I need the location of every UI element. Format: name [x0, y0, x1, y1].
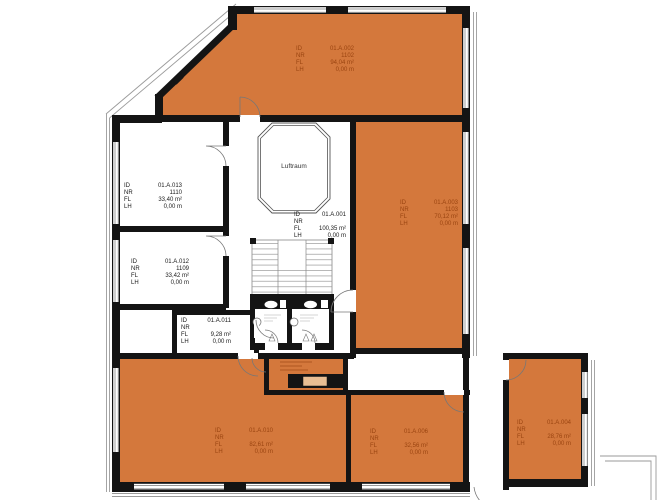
- field-key-id: ID: [294, 212, 307, 219]
- field-key-nr: NR: [296, 53, 309, 60]
- room-label-01-a-012: ID01.A.012 NR1109 FL33,42 m² LH0,00 m: [131, 259, 189, 287]
- room-fl: 28,76 m²: [530, 434, 571, 441]
- floor-plan: ID01.A.002 NR1102 FL94,04 m² LH0,00 m ID…: [0, 0, 660, 500]
- room-lh: 0,00 m: [137, 204, 182, 211]
- field-key-lh: LH: [296, 67, 309, 74]
- room-nr: [383, 436, 428, 443]
- toilet-icon: [304, 301, 317, 309]
- room-id: 01.A.003: [413, 200, 458, 207]
- field-key-lh: LH: [370, 450, 383, 457]
- wc-core: [250, 294, 334, 350]
- field-key-fl: FL: [294, 226, 307, 233]
- field-key-nr: NR: [294, 219, 307, 226]
- field-key-nr: NR: [124, 190, 137, 197]
- field-key-fl: FL: [124, 197, 137, 204]
- field-key-fl: FL: [370, 443, 383, 450]
- toilet-icon: [265, 301, 278, 309]
- field-key-lh: LH: [517, 441, 530, 448]
- field-key-nr: NR: [370, 436, 383, 443]
- room-lh: 0,00 m: [413, 221, 458, 228]
- room-id: 01.A.012: [144, 259, 189, 266]
- room-fl: 82,61 m²: [228, 442, 273, 449]
- room-lh: 0,00 m: [309, 67, 354, 74]
- field-key-nr: NR: [181, 325, 194, 332]
- field-key-nr: NR: [215, 435, 228, 442]
- room-id: 01.A.004: [530, 420, 571, 427]
- field-key-fl: FL: [296, 60, 309, 67]
- room-lh: 0,00 m: [383, 450, 428, 457]
- room-id: 01.A.013: [137, 183, 182, 190]
- room-label-01-a-002: ID01.A.002 NR1102 FL94,04 m² LH0,00 m: [296, 46, 354, 74]
- room-label-01-a-001: ID01.A.001 NR FL100,35 m² LH0,00 m: [294, 212, 346, 240]
- field-key-lh: LH: [181, 339, 194, 346]
- room-nr: [530, 427, 571, 434]
- field-key-fl: FL: [181, 332, 194, 339]
- room-id: 01.A.006: [383, 429, 428, 436]
- room-label-01-a-003: ID01.A.003 NR1103 FL70,12 m² LH0,00 m: [400, 200, 458, 228]
- room-fl: 33,40 m²: [137, 197, 182, 204]
- room-label-01-a-010: ID01.A.010 NR FL82,61 m² LH0,00 m: [215, 428, 273, 456]
- room-id: 01.A.011: [194, 318, 231, 325]
- room-fl: 70,12 m²: [413, 214, 458, 221]
- field-key-nr: NR: [400, 207, 413, 214]
- room-nr: [307, 219, 346, 226]
- field-key-lh: LH: [131, 280, 144, 287]
- field-key-id: ID: [517, 420, 530, 427]
- room-label-01-a-006: ID01.A.006 NR FL32,56 m² LH0,00 m: [370, 429, 428, 457]
- room-nr: [194, 325, 231, 332]
- room-01-a-003[interactable]: [355, 119, 466, 352]
- room-id: 01.A.001: [307, 212, 346, 219]
- field-key-id: ID: [131, 259, 144, 266]
- sink-icon: [290, 318, 298, 326]
- room-fl: 100,35 m²: [307, 226, 346, 233]
- field-key-id: ID: [400, 200, 413, 207]
- room-fl: 33,42 m²: [144, 273, 189, 280]
- elevator-car[interactable]: [303, 377, 327, 387]
- room-lh: 0,00 m: [530, 441, 571, 448]
- field-key-id: ID: [124, 183, 137, 190]
- room-fl: 9,28 m²: [194, 332, 231, 339]
- field-key-lh: LH: [400, 221, 413, 228]
- staircase: [250, 238, 334, 296]
- field-key-id: ID: [370, 429, 383, 436]
- field-key-fl: FL: [517, 434, 530, 441]
- room-label-01-a-013: ID01.A.013 NR1110 FL33,40 m² LH0,00 m: [124, 183, 182, 211]
- room-nr: [228, 435, 273, 442]
- room-nr: 1103: [413, 207, 458, 214]
- room-id: 01.A.002: [309, 46, 354, 53]
- room-lh: 0,00 m: [307, 233, 346, 240]
- room-label-01-a-004: ID01.A.004 NR FL28,76 m² LH0,00 m: [517, 420, 571, 448]
- atrium-label: Luftraum: [268, 163, 320, 170]
- room-fl: 32,56 m²: [383, 443, 428, 450]
- field-key-nr: NR: [131, 266, 144, 273]
- field-key-id: ID: [181, 318, 194, 325]
- room-lh: 0,00 m: [144, 280, 189, 287]
- field-key-fl: FL: [131, 273, 144, 280]
- room-label-01-a-011: ID01.A.011 NR FL9,28 m² LH0,00 m: [181, 318, 231, 346]
- field-key-id: ID: [215, 428, 228, 435]
- room-id: 01.A.010: [228, 428, 273, 435]
- room-fl: 94,04 m²: [309, 60, 354, 67]
- room-nr: 1109: [144, 266, 189, 273]
- field-key-lh: LH: [215, 449, 228, 456]
- room-lh: 0,00 m: [194, 339, 231, 346]
- room-nr: 1110: [137, 190, 182, 197]
- field-key-fl: FL: [215, 442, 228, 449]
- room-lh: 0,00 m: [228, 449, 273, 456]
- field-key-fl: FL: [400, 214, 413, 221]
- field-key-id: ID: [296, 46, 309, 53]
- field-key-nr: NR: [517, 427, 530, 434]
- field-key-lh: LH: [124, 204, 137, 211]
- room-nr: 1102: [309, 53, 354, 60]
- field-key-lh: LH: [294, 233, 307, 240]
